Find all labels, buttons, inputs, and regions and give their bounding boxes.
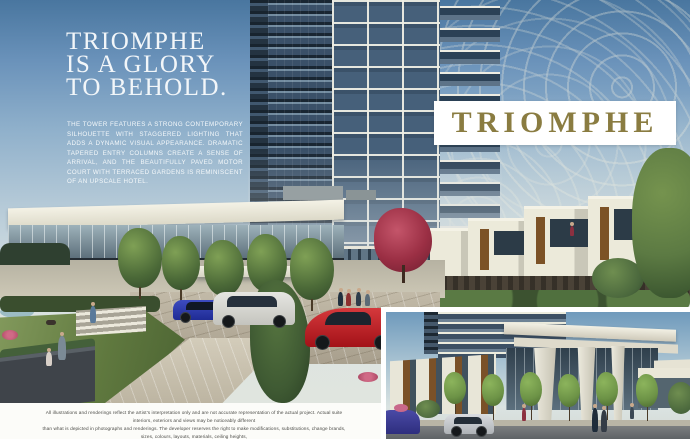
inset-silver-car xyxy=(444,414,494,434)
large-tree-right xyxy=(632,148,690,298)
rooftop-mechanical-box xyxy=(346,190,376,200)
parent-on-lawn xyxy=(58,336,66,360)
car-windows xyxy=(227,296,277,307)
disclaimer-line-1: All illustrations and renderings reflect… xyxy=(36,409,352,425)
car-wheel xyxy=(180,312,191,323)
wordmark-text: TRIOMPHE xyxy=(452,108,659,138)
wordmark-band: TRIOMPHE xyxy=(434,101,676,145)
disclaimer-line-2: than what is depicted in photographs and… xyxy=(36,425,352,439)
inset-scene xyxy=(386,312,690,439)
inset-tower-balcony-fins xyxy=(424,312,439,354)
red-maple-tree xyxy=(374,208,432,272)
car-wheel xyxy=(222,315,235,328)
entry-stairs xyxy=(76,306,146,336)
pink-flowers xyxy=(358,372,378,382)
inset-pedestrian xyxy=(601,410,607,432)
inset-bush xyxy=(416,400,440,418)
legal-disclaimer: All illustrations and renderings reflect… xyxy=(36,409,352,439)
pedestrian xyxy=(365,294,370,306)
inset-street-tree xyxy=(596,372,618,406)
inset-blue-car xyxy=(386,410,420,434)
car-windows xyxy=(325,312,371,325)
townhome-wood-accent xyxy=(600,207,609,260)
townhome-wood-accent xyxy=(480,229,489,270)
tree xyxy=(162,236,200,290)
headline-line-3: TO BEHOLD. xyxy=(66,76,306,99)
inset-street-tree xyxy=(636,374,658,407)
car-wheel xyxy=(273,315,286,328)
headline-line-2: IS A GLORY xyxy=(66,53,306,76)
toddler-on-lawn xyxy=(46,352,52,366)
car-windows xyxy=(454,417,482,424)
inset-pedestrian xyxy=(630,407,634,419)
pedestrian xyxy=(346,293,351,306)
pedestrian-walking-dog xyxy=(90,306,96,323)
body-copy: THE TOWER FEATURES A STRONG CONTEMPORARY… xyxy=(67,120,243,187)
pink-flowers xyxy=(2,330,18,340)
inset-pedestrian xyxy=(522,408,526,421)
dog xyxy=(46,320,56,325)
white-suv xyxy=(213,292,295,325)
brochure-spread: TRIOMPHE IS A GLORY TO BEHOLD. THE TOWER… xyxy=(0,0,690,439)
inset-pedestrian xyxy=(592,408,598,432)
inset-pink-flowers xyxy=(394,404,408,412)
inset-street-tree xyxy=(482,374,504,406)
inset-rendering xyxy=(381,307,690,439)
inset-street-tree xyxy=(520,372,542,406)
pedestrian xyxy=(338,292,343,306)
townhome-wood-accent xyxy=(536,217,545,264)
headline-line-1: TRIOMPHE xyxy=(66,30,306,53)
inset-bush xyxy=(668,382,690,414)
car-wheel xyxy=(451,426,462,437)
person-on-balcony xyxy=(570,226,574,236)
pedestrian xyxy=(356,292,361,306)
tree xyxy=(290,238,334,300)
inset-street-tree xyxy=(444,372,466,404)
background-treeline xyxy=(0,243,70,265)
tree xyxy=(118,228,162,288)
tree xyxy=(204,240,244,296)
car-wheel xyxy=(476,426,487,437)
car-wheel xyxy=(315,335,330,350)
headline: TRIOMPHE IS A GLORY TO BEHOLD. xyxy=(66,30,306,99)
inset-street-tree xyxy=(558,374,580,407)
inset-road xyxy=(386,426,690,439)
